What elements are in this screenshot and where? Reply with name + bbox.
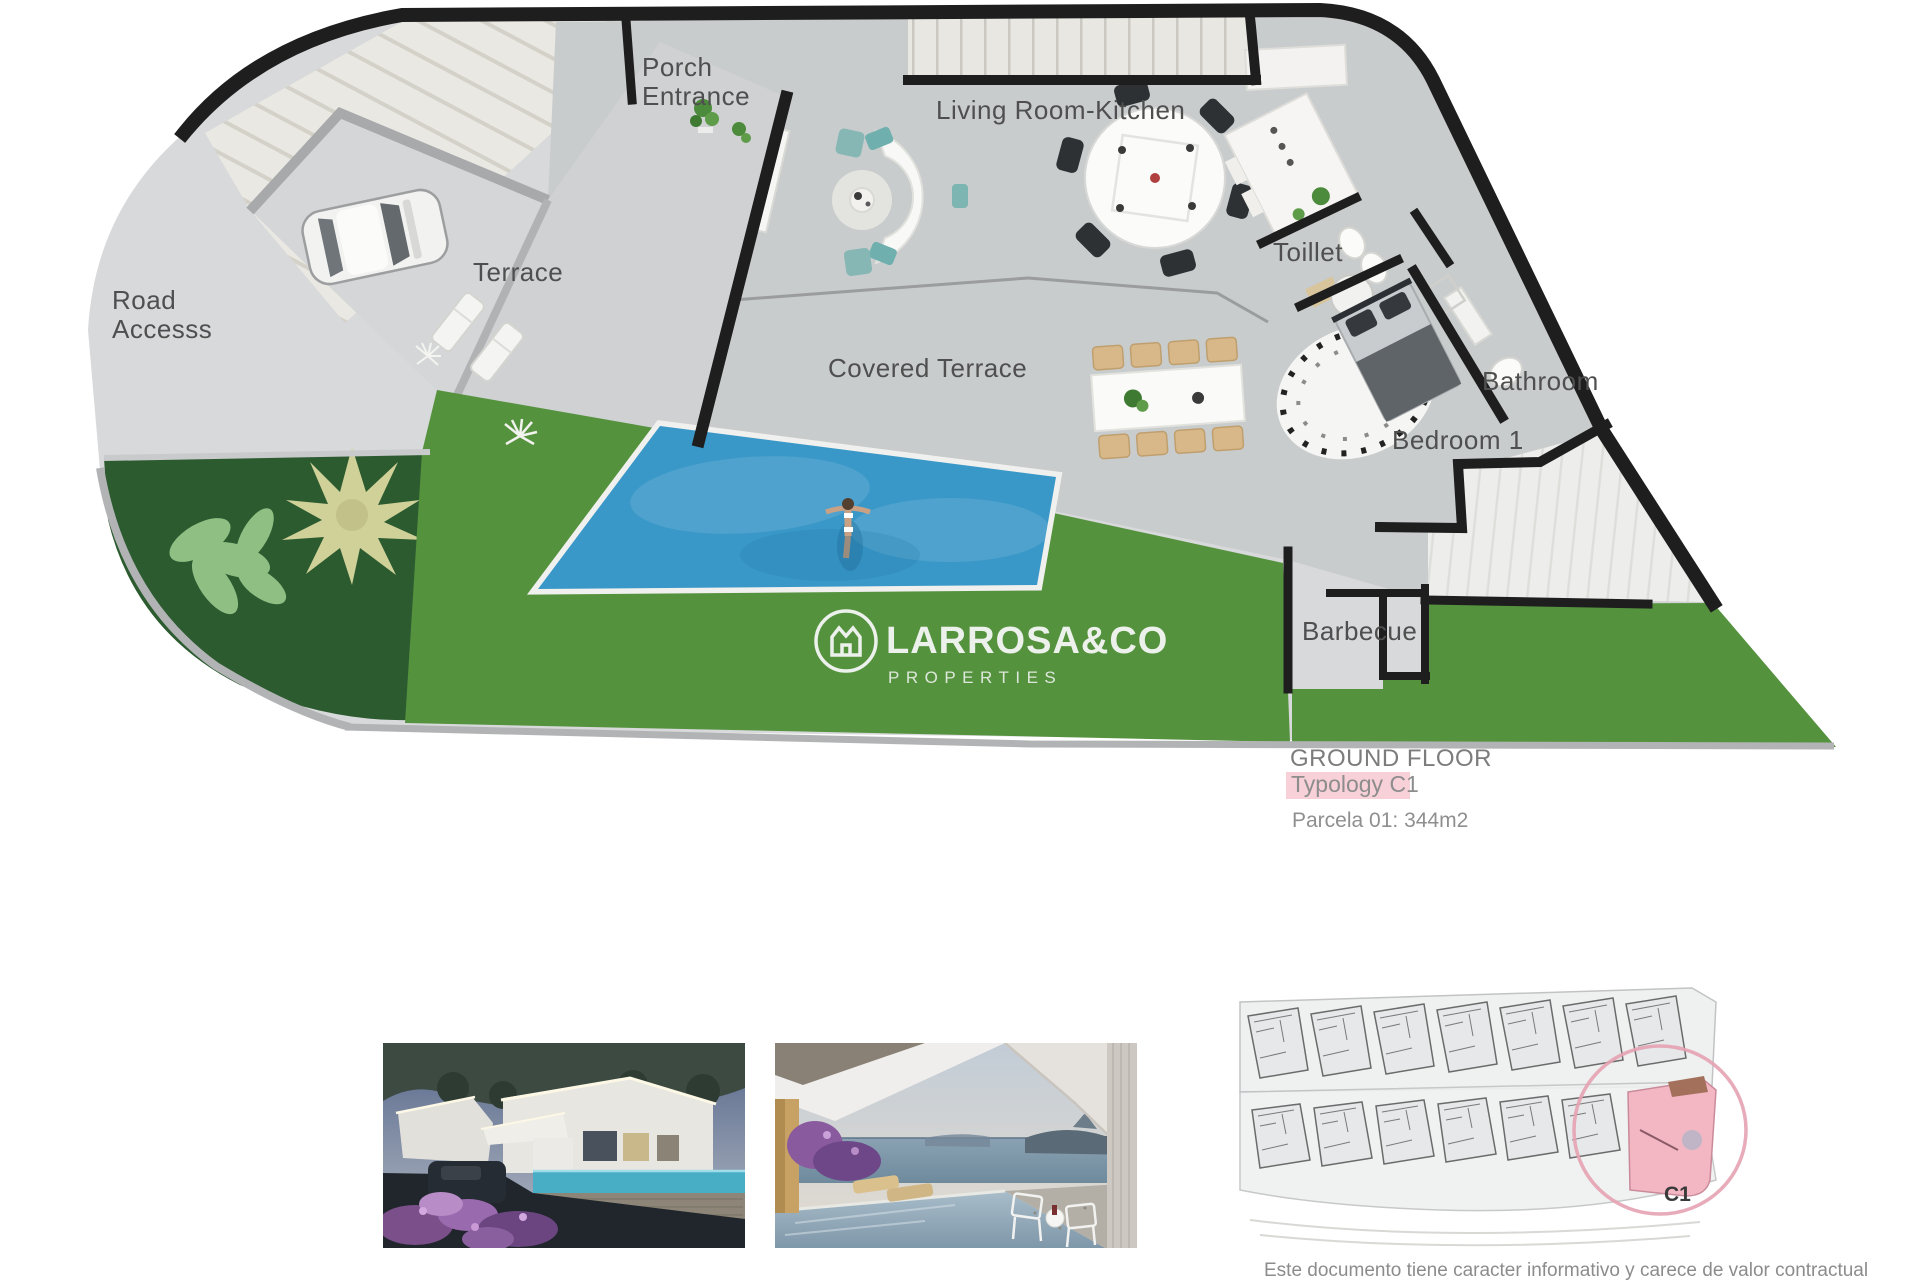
typology-label: Typology C1 bbox=[1291, 771, 1419, 797]
logo-tagline: PROPERTIES bbox=[888, 668, 1062, 687]
photo-terrace-view bbox=[775, 1043, 1137, 1248]
label-porch-line1: Porch bbox=[642, 52, 712, 82]
label-bedroom: Bedroom 1 bbox=[1392, 425, 1524, 455]
upper-stairs bbox=[908, 16, 1256, 78]
title-block: GROUND FLOOR Typology C1 Parcela 01: 344… bbox=[1286, 745, 1492, 832]
label-terrace: Terrace bbox=[473, 257, 563, 287]
floorplan-canvas: Porch Entrance Living Room-Kitchen Terra… bbox=[0, 0, 1920, 1280]
photo-villa-exterior bbox=[377, 1043, 745, 1251]
label-barbecue: Barbecue bbox=[1302, 616, 1417, 646]
floor-title: GROUND FLOOR bbox=[1290, 745, 1492, 772]
label-porch-line2: Entrance bbox=[642, 81, 750, 111]
label-road-line1: Road bbox=[112, 285, 176, 315]
label-covered-terrace: Covered Terrace bbox=[828, 353, 1027, 383]
site-unit-label: C1 bbox=[1664, 1183, 1691, 1206]
label-bathroom: Bathroom bbox=[1482, 366, 1599, 396]
parcel-label: Parcela 01: 344m2 bbox=[1292, 809, 1468, 832]
label-living: Living Room-Kitchen bbox=[936, 95, 1185, 125]
site-plan: C1 bbox=[1240, 988, 1746, 1245]
label-toilet: Toillet bbox=[1273, 237, 1343, 267]
label-road-line2: Accesss bbox=[112, 314, 212, 344]
floor-plan: Porch Entrance Living Room-Kitchen Terra… bbox=[88, 10, 1836, 747]
disclaimer-text: Este documento tiene caracter informativ… bbox=[1264, 1260, 1868, 1280]
logo-name: LARROSA&CO bbox=[886, 620, 1168, 662]
floorplan-document: Porch Entrance Living Room-Kitchen Terra… bbox=[0, 0, 1920, 1280]
